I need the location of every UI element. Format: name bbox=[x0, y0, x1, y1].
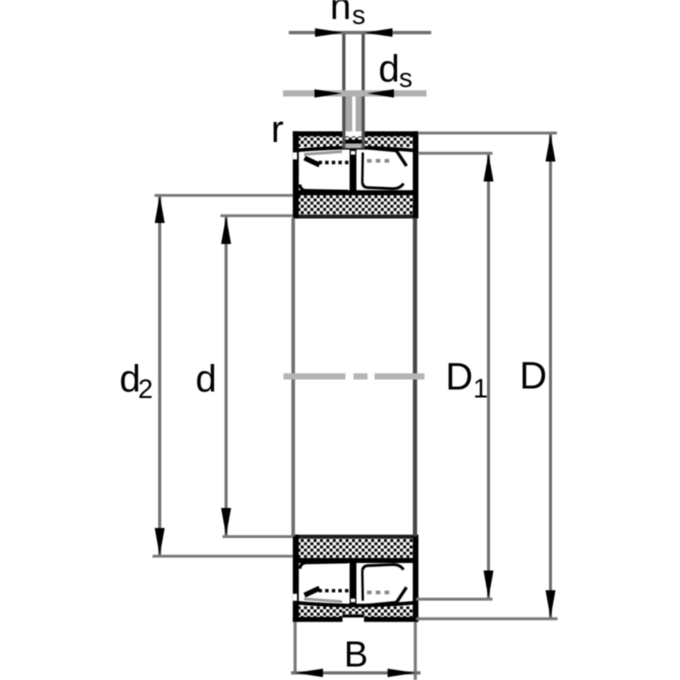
svg-text:1: 1 bbox=[473, 374, 488, 404]
svg-text:2: 2 bbox=[138, 374, 153, 404]
svg-text:s: s bbox=[352, 0, 366, 30]
svg-text:d: d bbox=[196, 359, 217, 401]
svg-text:d: d bbox=[379, 49, 400, 91]
svg-text:D: D bbox=[520, 356, 547, 398]
svg-text:r: r bbox=[271, 109, 284, 151]
svg-text:n: n bbox=[330, 0, 351, 28]
svg-text:B: B bbox=[344, 634, 368, 675]
svg-text:D: D bbox=[446, 357, 473, 399]
svg-text:s: s bbox=[399, 63, 413, 93]
